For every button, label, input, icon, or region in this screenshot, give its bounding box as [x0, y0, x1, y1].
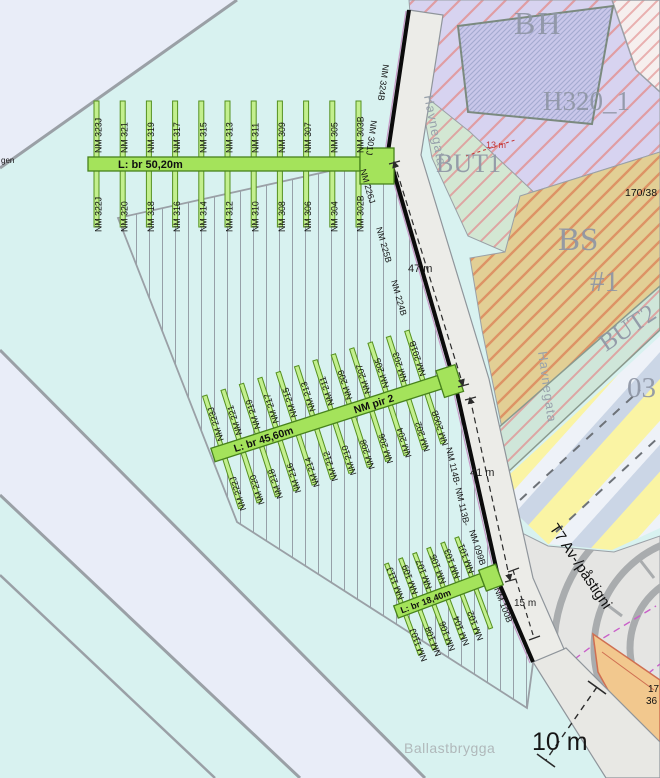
zone-label-bs-number: #1	[590, 266, 619, 298]
zone-label-h320: H320_1	[543, 86, 630, 116]
berth-label: NM 304	[329, 201, 339, 232]
berth-label: NM 302B	[356, 195, 366, 232]
street-label-ballastbrygga: Ballastbrygga	[404, 740, 495, 756]
berth-label: NM 306	[303, 201, 313, 232]
parcel-number-36: 36	[646, 696, 658, 707]
dimension-15m: 15 m	[514, 598, 536, 609]
berth-label: NM 313	[225, 122, 235, 153]
berth-label: NM 314	[198, 201, 208, 232]
map-canvas[interactable]: L: br 50,20mNM 323JNM 321NM 319NM 317NM …	[0, 0, 660, 778]
berth-label: NM 308	[277, 201, 287, 232]
berth-label: NM 310	[251, 201, 261, 232]
berth-label: NM 316	[172, 201, 182, 232]
berth-label: NM 309	[277, 122, 287, 153]
dimension-41m: 41 m	[470, 467, 494, 479]
berth-label: NM 321	[120, 122, 130, 153]
berth-label: NM 320	[120, 201, 130, 232]
dimension-47m: 47 m	[408, 263, 432, 275]
berth-label: NM 311	[251, 123, 261, 153]
berth-label: NM 318	[146, 201, 156, 232]
partial-street-label: gen	[1, 156, 14, 165]
harbor-map: L: br 50,20mNM 323JNM 321NM 319NM 317NM …	[0, 0, 660, 778]
berth-label: NM 312	[225, 201, 235, 232]
berth-label: NM 323J	[94, 118, 104, 153]
dimension-13m: 13 m	[486, 140, 506, 150]
berth-label: NM 305	[329, 122, 339, 153]
berth-label: NM 315	[198, 122, 208, 153]
parcel-number-17: 17	[648, 684, 660, 695]
berth-label: NM 322J	[94, 197, 104, 232]
zone-label-bh: BH	[514, 5, 562, 41]
berth-label: NM 317	[172, 122, 182, 153]
zone-label-03: 03	[627, 372, 656, 404]
berth-label: NM 319	[146, 122, 156, 153]
berth-label: NM 307	[303, 122, 313, 153]
dimension-10m: 10 m	[532, 728, 588, 756]
parcel-number-170-38: 170/38	[625, 187, 657, 199]
pier-length-label: L: br 50,20m	[118, 159, 183, 171]
zone-label-bs: BS	[558, 222, 598, 258]
berth-label: NM 303B	[356, 116, 366, 153]
